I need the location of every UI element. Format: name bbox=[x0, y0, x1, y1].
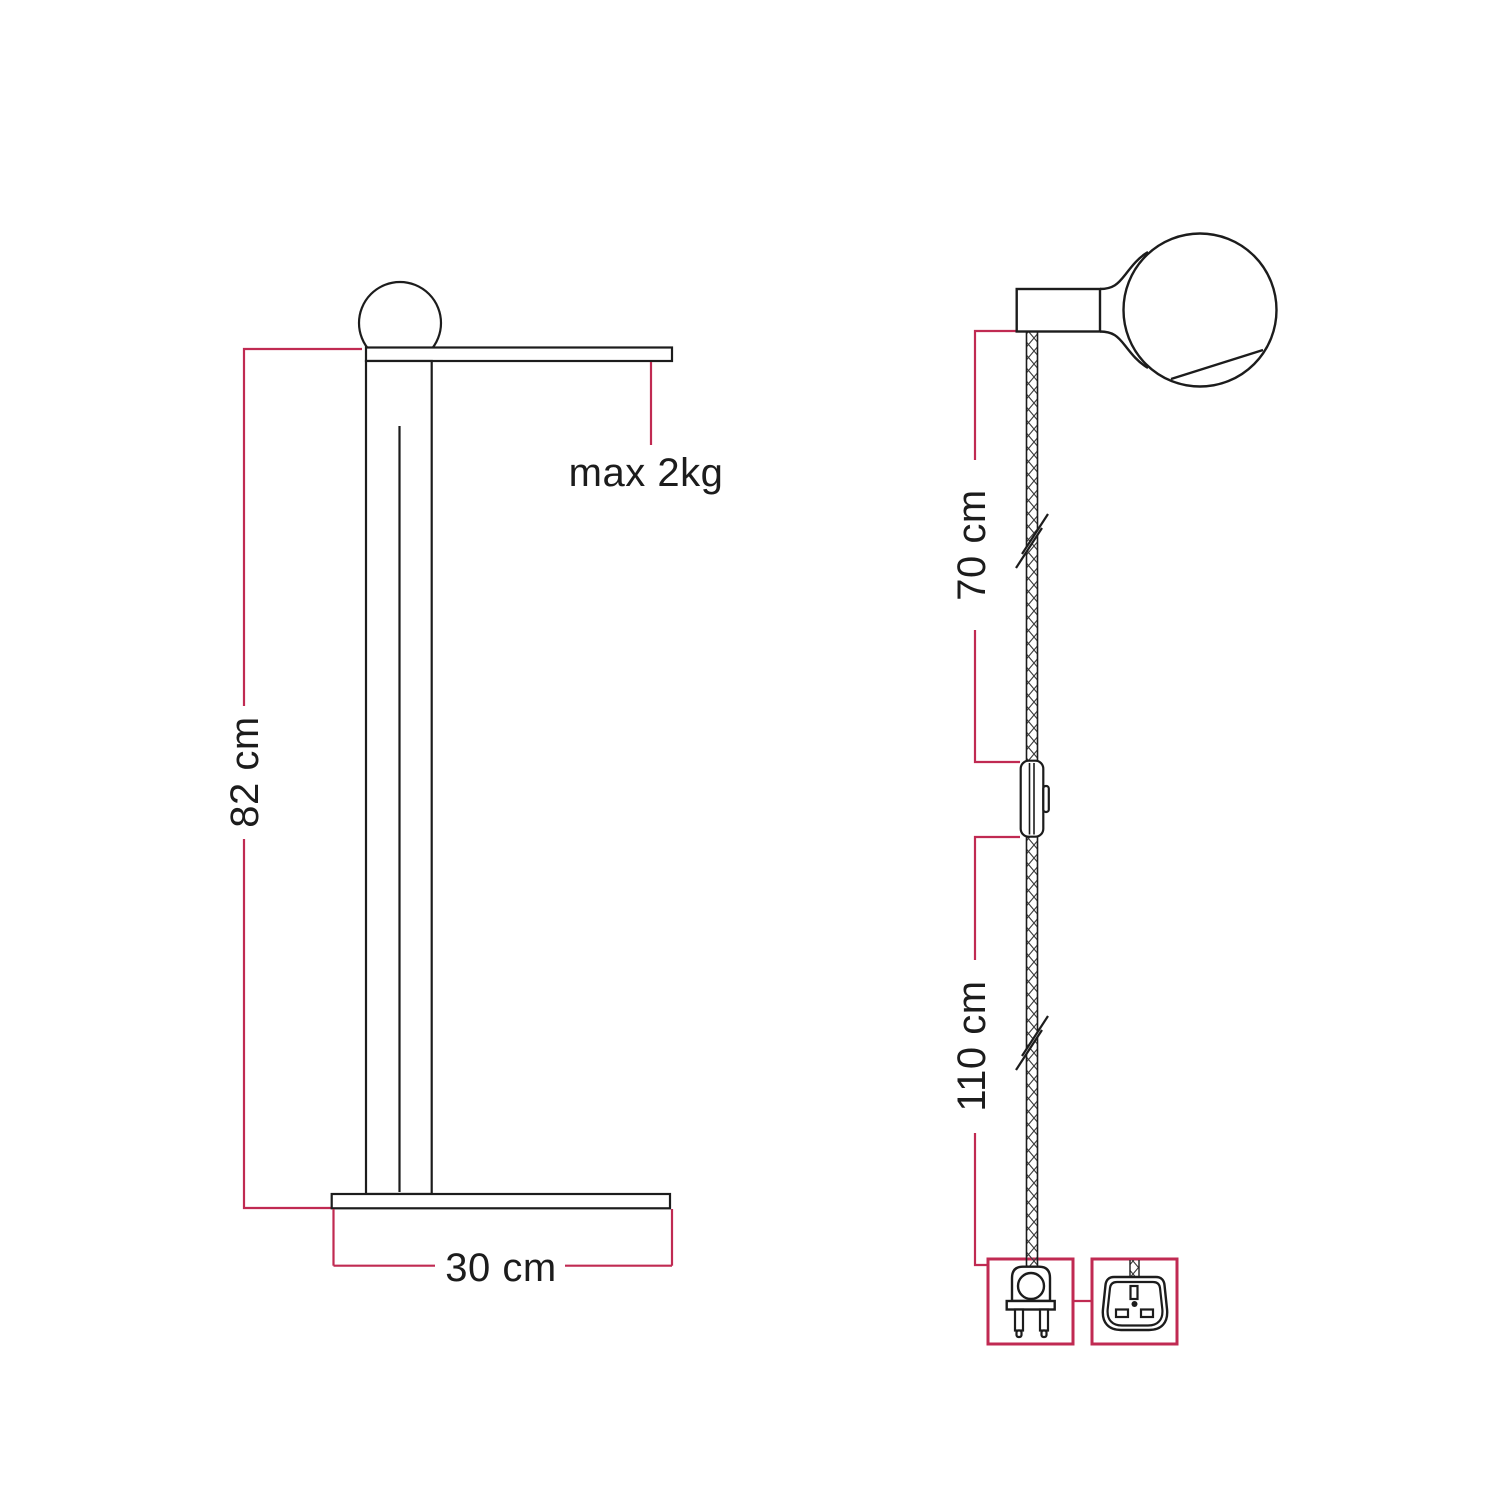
lamp-holder-socket bbox=[1017, 289, 1100, 332]
lower-cable-dim-top bbox=[975, 837, 1020, 960]
max-load-label: max 2kg bbox=[569, 451, 724, 495]
euro-plug-flange bbox=[1007, 1301, 1055, 1310]
lower-cable-label: 110 cm bbox=[950, 980, 994, 1111]
euro-plug-pin-right bbox=[1040, 1310, 1048, 1331]
base-width-label: 30 cm bbox=[445, 1246, 556, 1290]
uk-plug-screw-dot bbox=[1132, 1301, 1138, 1307]
euro-plug-pin-tip-right bbox=[1042, 1331, 1047, 1338]
bulb-globe bbox=[1124, 234, 1277, 387]
pendant-figure: 70 cm 110 cm bbox=[950, 234, 1277, 1345]
lower-cable-dim-bottom bbox=[975, 1133, 989, 1265]
lamp-dimensions-diagram: max 2kg 82 cm 30 cm 70 cm 110 cm bbox=[0, 0, 1500, 1500]
uk-plug-earth-slot bbox=[1131, 1286, 1138, 1299]
upper-cable-label: 70 cm bbox=[950, 489, 994, 600]
dimension-base-width: 30 cm bbox=[334, 1209, 673, 1290]
uk-plug-slot-left bbox=[1116, 1310, 1128, 1318]
uk-plug-slot-right bbox=[1141, 1310, 1153, 1318]
euro-two-pin-plug-icon bbox=[1007, 1267, 1055, 1337]
lamp-base bbox=[332, 1194, 670, 1208]
dimension-height-line-bottom bbox=[244, 839, 333, 1208]
switch-body bbox=[1021, 761, 1044, 837]
euro-plug-pin-left bbox=[1015, 1310, 1023, 1331]
inline-switch-icon bbox=[1021, 761, 1049, 837]
uk-three-pin-plug-icon bbox=[1103, 1260, 1167, 1330]
height-label: 82 cm bbox=[223, 716, 267, 827]
upper-cable-dim-bottom bbox=[975, 630, 1020, 762]
uk-plug-cable-stub bbox=[1130, 1260, 1139, 1277]
lamp-figure: max 2kg 82 cm 30 cm bbox=[223, 282, 723, 1290]
diagram-svg: max 2kg 82 cm 30 cm 70 cm 110 cm bbox=[0, 0, 1500, 1500]
dimension-height-line-top bbox=[244, 349, 362, 706]
lamp-shelf-arm bbox=[366, 348, 672, 362]
dimension-lower-cable: 110 cm bbox=[950, 837, 1020, 1265]
globe-bulb-icon bbox=[1017, 234, 1277, 387]
dimension-upper-cable: 70 cm bbox=[950, 331, 1020, 762]
euro-plug-circle bbox=[1018, 1273, 1044, 1299]
euro-plug-pin-tip-left bbox=[1017, 1331, 1022, 1338]
switch-button bbox=[1043, 786, 1049, 812]
upper-cable-dim-top bbox=[975, 331, 1016, 460]
